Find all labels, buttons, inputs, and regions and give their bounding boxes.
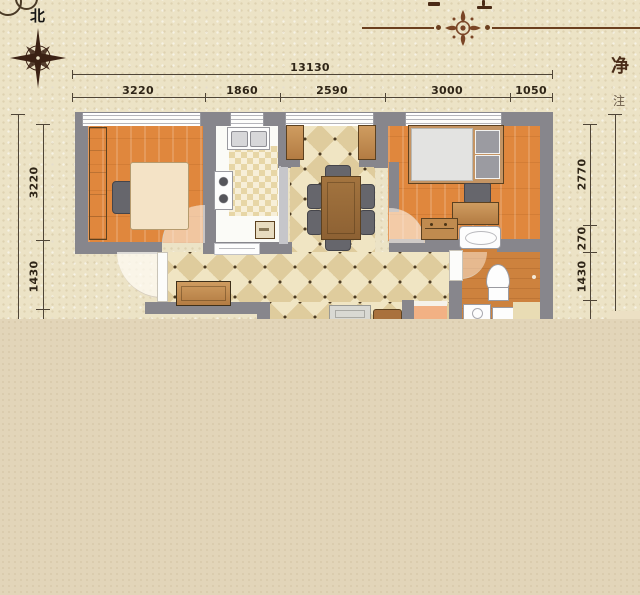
dim-tick — [280, 93, 281, 102]
hallway-console — [176, 281, 231, 306]
dim-tick — [205, 93, 206, 102]
dim-right-seg-3: 1430 — [576, 254, 589, 300]
kitchen-fridge-icon — [255, 221, 275, 239]
wall-right — [540, 112, 553, 319]
dim-tick — [36, 240, 50, 241]
washbasin — [459, 226, 501, 249]
floorplan-page: 北 净 注 — [0, 0, 640, 595]
title-fragment — [482, 0, 485, 6]
kitchen-sink — [227, 127, 270, 150]
dim-top-seg-2: 1860 — [212, 84, 272, 97]
ornament-dot — [485, 25, 490, 30]
lower-peach-item-partial — [414, 306, 447, 319]
wall-bedroom-west — [389, 162, 399, 212]
dim-tick — [608, 114, 622, 115]
dining-chair — [359, 184, 375, 209]
wall-lower-piece — [402, 300, 414, 319]
dim-top-total: 13130 — [270, 61, 350, 74]
entry-cabinet-left — [286, 125, 304, 160]
dim-tick — [385, 93, 386, 102]
bedroom-bed — [408, 125, 504, 184]
dim-line-left-outer — [18, 114, 19, 319]
entry-door-arc — [117, 252, 162, 298]
wall-dining-bedroom — [374, 112, 388, 168]
kitchen-tile-area — [229, 146, 278, 216]
bath-tile-partial — [513, 302, 540, 319]
dim-tick — [552, 70, 553, 79]
study-desk — [130, 162, 189, 230]
bedroom-dresser — [421, 218, 458, 240]
dim-top-seg-1: 3220 — [108, 84, 168, 97]
right-note-secondary: 注 — [613, 92, 625, 109]
ornament-dot — [436, 25, 441, 30]
toilet-tank — [488, 287, 509, 301]
window-kitchen — [230, 113, 264, 126]
bottom-cover-band — [0, 319, 640, 595]
dim-line-left-inner — [43, 124, 44, 319]
kitchen-glass-partition — [279, 166, 288, 244]
title-fragment — [428, 2, 440, 6]
dim-top-seg-3: 2590 — [302, 84, 362, 97]
ornament-rule — [362, 27, 434, 29]
bedroom-chair — [464, 183, 491, 203]
north-label: 北 — [30, 5, 45, 26]
dim-left-seg-2: 1430 — [28, 254, 41, 300]
dim-tick — [583, 124, 597, 125]
entry-cabinet-right — [358, 125, 376, 160]
compass-rose-icon — [8, 28, 68, 88]
study-wardrobe — [89, 127, 107, 240]
dim-tick — [36, 124, 50, 125]
kitchen-sliding-door — [214, 243, 260, 255]
dim-tick — [36, 309, 50, 310]
wall-bathroom-left — [449, 276, 462, 319]
window-study — [82, 113, 201, 126]
dim-line-top-total — [72, 74, 553, 75]
dining-chair — [359, 210, 375, 235]
dim-right-seg-1: 2770 — [576, 152, 589, 198]
dim-tick — [72, 70, 73, 79]
ornament-rule — [492, 27, 640, 29]
bathroom-door-leaf — [449, 250, 463, 281]
dim-top-seg-5: 1050 — [501, 84, 561, 97]
kitchen-stove — [214, 171, 233, 210]
bathroom-handle-dot — [532, 275, 536, 279]
dim-line-top-segments — [72, 97, 553, 98]
dim-tick — [583, 300, 597, 301]
bedroom-desk — [452, 202, 499, 225]
dim-line-right-inner — [590, 124, 591, 319]
entry-door-leaf — [157, 252, 168, 302]
ornament-medallion-icon — [444, 9, 482, 47]
wall-hall-corner — [257, 302, 270, 319]
right-note-primary: 净 — [611, 52, 629, 78]
dim-top-seg-4: 3000 — [417, 84, 477, 97]
dim-line-right-outer — [615, 114, 616, 319]
dim-tick — [11, 114, 25, 115]
wall-left — [75, 112, 88, 254]
dim-tick — [72, 93, 73, 102]
dining-table — [321, 176, 361, 240]
dim-left-seg-1: 3220 — [28, 160, 41, 206]
